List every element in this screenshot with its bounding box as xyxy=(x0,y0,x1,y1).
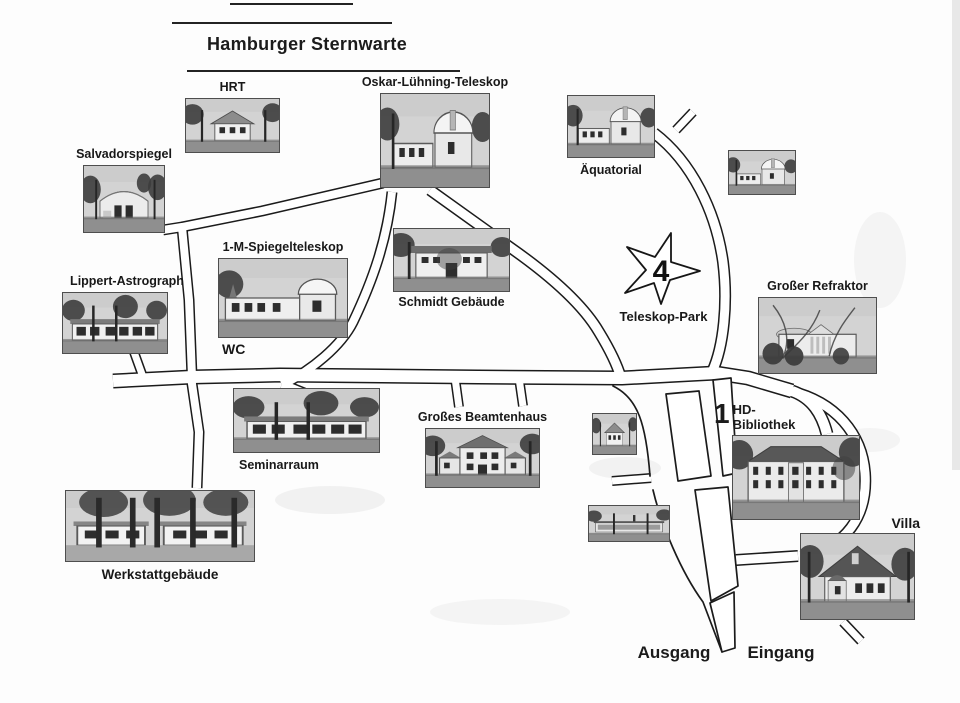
building-grosses-beamtenhaus: Großes Beamtenhaus xyxy=(425,428,540,488)
title-overline xyxy=(172,22,392,24)
teleskop-park-label: Teleskop-Park xyxy=(596,309,731,324)
aequatorial-label: Äquatorial xyxy=(580,163,642,177)
oskar-luehning-teleskop-photo xyxy=(380,93,490,188)
grosser-refraktor-photo xyxy=(758,297,877,374)
building-schmidt-gebaeude: Schmidt Gebäude xyxy=(393,228,510,292)
hd-label-line2: Bibliothek xyxy=(733,417,796,432)
hd-bibliothek-number: 1 xyxy=(714,401,730,428)
1-m-spiegelteleskop-label: 1-M-Spiegelteleskop xyxy=(223,240,344,254)
hd-label-line1: HD- xyxy=(733,402,756,417)
aequatorial-photo xyxy=(567,95,655,158)
kuppel-pavillon-photo xyxy=(728,150,796,195)
pavillon-photo xyxy=(588,505,670,542)
ausgang-label: Ausgang xyxy=(628,643,720,663)
wc-label: WC xyxy=(222,341,245,357)
building-grosser-refraktor: Großer Refraktor xyxy=(758,297,877,374)
building-werkstattgebaeude: Werkstattgebäude xyxy=(65,490,255,562)
building-lippert-astrograph: Lippert-Astrograph xyxy=(62,292,168,354)
schmidt-gebaeude-label: Schmidt Gebäude xyxy=(398,295,504,309)
seminarraum-photo xyxy=(233,388,380,453)
building-1-m-spiegelteleskop: 1-M-Spiegelteleskop xyxy=(218,258,348,338)
grosses-beamtenhaus-photo xyxy=(425,428,540,488)
title-underline xyxy=(187,70,460,72)
oskar-luehning-teleskop-label: Oskar-Lühning-Teleskop xyxy=(362,75,508,89)
hd-bibliothek-photo xyxy=(732,435,860,520)
lippert-astrograph-label: Lippert-Astrograph xyxy=(70,274,184,288)
werkstattgebaeude-photo xyxy=(65,490,255,562)
building-kuppel-pavillon xyxy=(728,150,796,195)
salvadorspiegel-photo xyxy=(83,165,165,233)
building-hd-bibliothek: 1 HD- Bibliothek xyxy=(732,435,860,520)
building-salvadorspiegel: Salvadorspiegel xyxy=(83,165,165,233)
salvadorspiegel-label: Salvadorspiegel xyxy=(76,147,172,161)
building-pavillon xyxy=(588,505,670,542)
teleskop-park-star: 4 xyxy=(625,233,700,304)
star-number: 4 xyxy=(653,255,670,288)
grosser-refraktor-label: Großer Refraktor xyxy=(767,279,868,293)
top-mark-line xyxy=(230,3,353,5)
building-aequatorial: Äquatorial xyxy=(567,95,655,158)
building-villa: Villa xyxy=(800,533,915,620)
grosses-beamtenhaus-label: Großes Beamtenhaus xyxy=(418,410,547,424)
observatory-site-map: Hamburger Sternwarte xyxy=(0,0,960,703)
villa-label: Villa xyxy=(891,515,920,531)
seminarraum-label: Seminarraum xyxy=(239,458,319,472)
eingang-label: Eingang xyxy=(740,643,822,663)
schmidt-gebaeude-photo xyxy=(393,228,510,292)
page-title: Hamburger Sternwarte xyxy=(192,34,422,55)
hd-bibliothek-label: 1 HD- Bibliothek xyxy=(714,401,795,433)
lippert-astrograph-photo xyxy=(62,292,168,354)
building-oskar-luehning-teleskop: Oskar-Lühning-Teleskop xyxy=(380,93,490,188)
villa-photo xyxy=(800,533,915,620)
1-m-spiegelteleskop-photo xyxy=(218,258,348,338)
building-seminarraum: Seminarraum xyxy=(233,388,380,453)
kleines-haus-photo xyxy=(592,413,637,455)
hrt-photo xyxy=(185,98,280,153)
building-hrt: HRT xyxy=(185,98,280,153)
werkstattgebaeude-label: Werkstattgebäude xyxy=(102,567,219,583)
hrt-label: HRT xyxy=(220,80,246,94)
building-kleines-haus xyxy=(592,413,637,455)
